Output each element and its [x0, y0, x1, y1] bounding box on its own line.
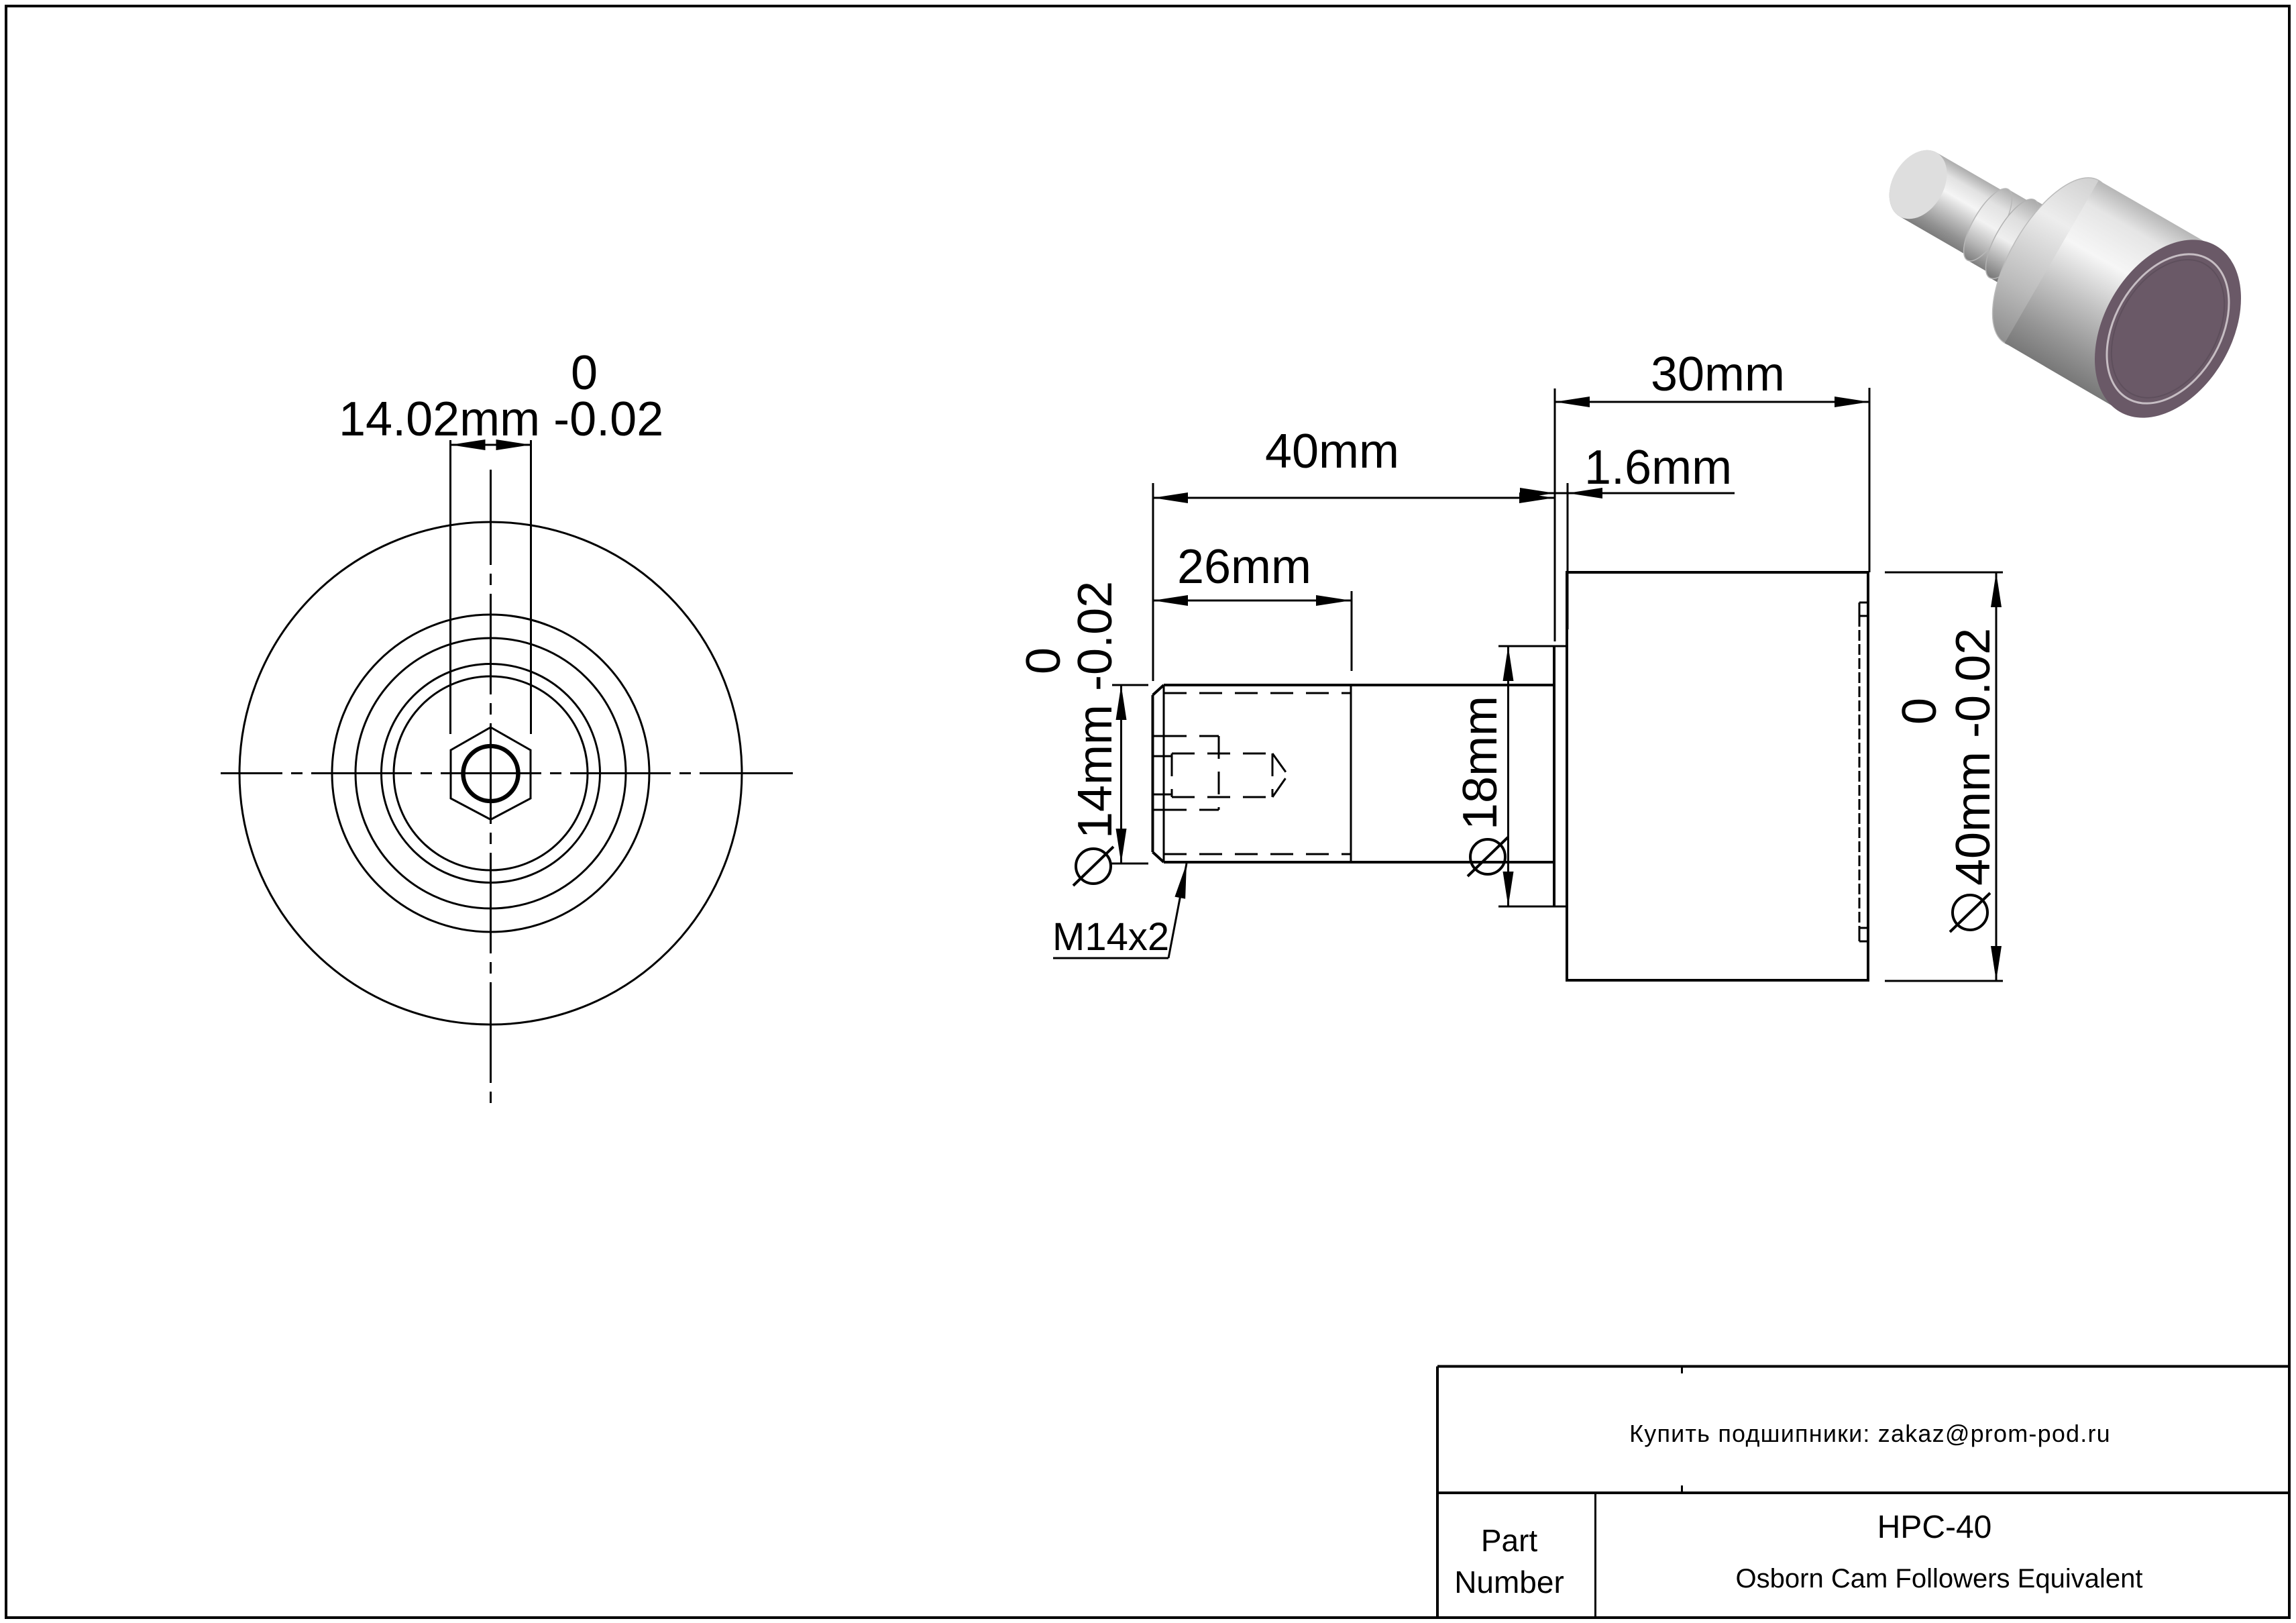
svg-text:Osborn Cam Followers Equivalen: Osborn Cam Followers Equivalent	[1736, 1564, 2143, 1593]
svg-text:26mm: 26mm	[1177, 540, 1311, 594]
svg-text:40mm: 40mm	[1265, 425, 1399, 478]
svg-text:30mm: 30mm	[1651, 348, 1785, 401]
svg-text:18mm: 18mm	[1454, 696, 1507, 830]
svg-text:0: 0	[571, 346, 598, 400]
svg-text:Купить подшипники: zakaz@prom-: Купить подшипники: zakaz@prom-pod.ru	[1629, 1420, 2111, 1447]
svg-text:40mm -0.02: 40mm -0.02	[1947, 628, 2000, 886]
svg-text:Number: Number	[1454, 1565, 1564, 1600]
svg-text:14mm -0.02: 14mm -0.02	[1069, 581, 1122, 839]
svg-text:0: 0	[1893, 698, 1947, 725]
svg-text:Part: Part	[1481, 1523, 1538, 1558]
svg-text:0: 0	[1017, 647, 1071, 674]
svg-text:1.6mm: 1.6mm	[1584, 441, 1732, 494]
svg-text:HPC-40: HPC-40	[1877, 1510, 1992, 1545]
svg-text:M14x2: M14x2	[1052, 915, 1169, 959]
svg-text:14.02mm -0.02: 14.02mm -0.02	[339, 392, 663, 446]
